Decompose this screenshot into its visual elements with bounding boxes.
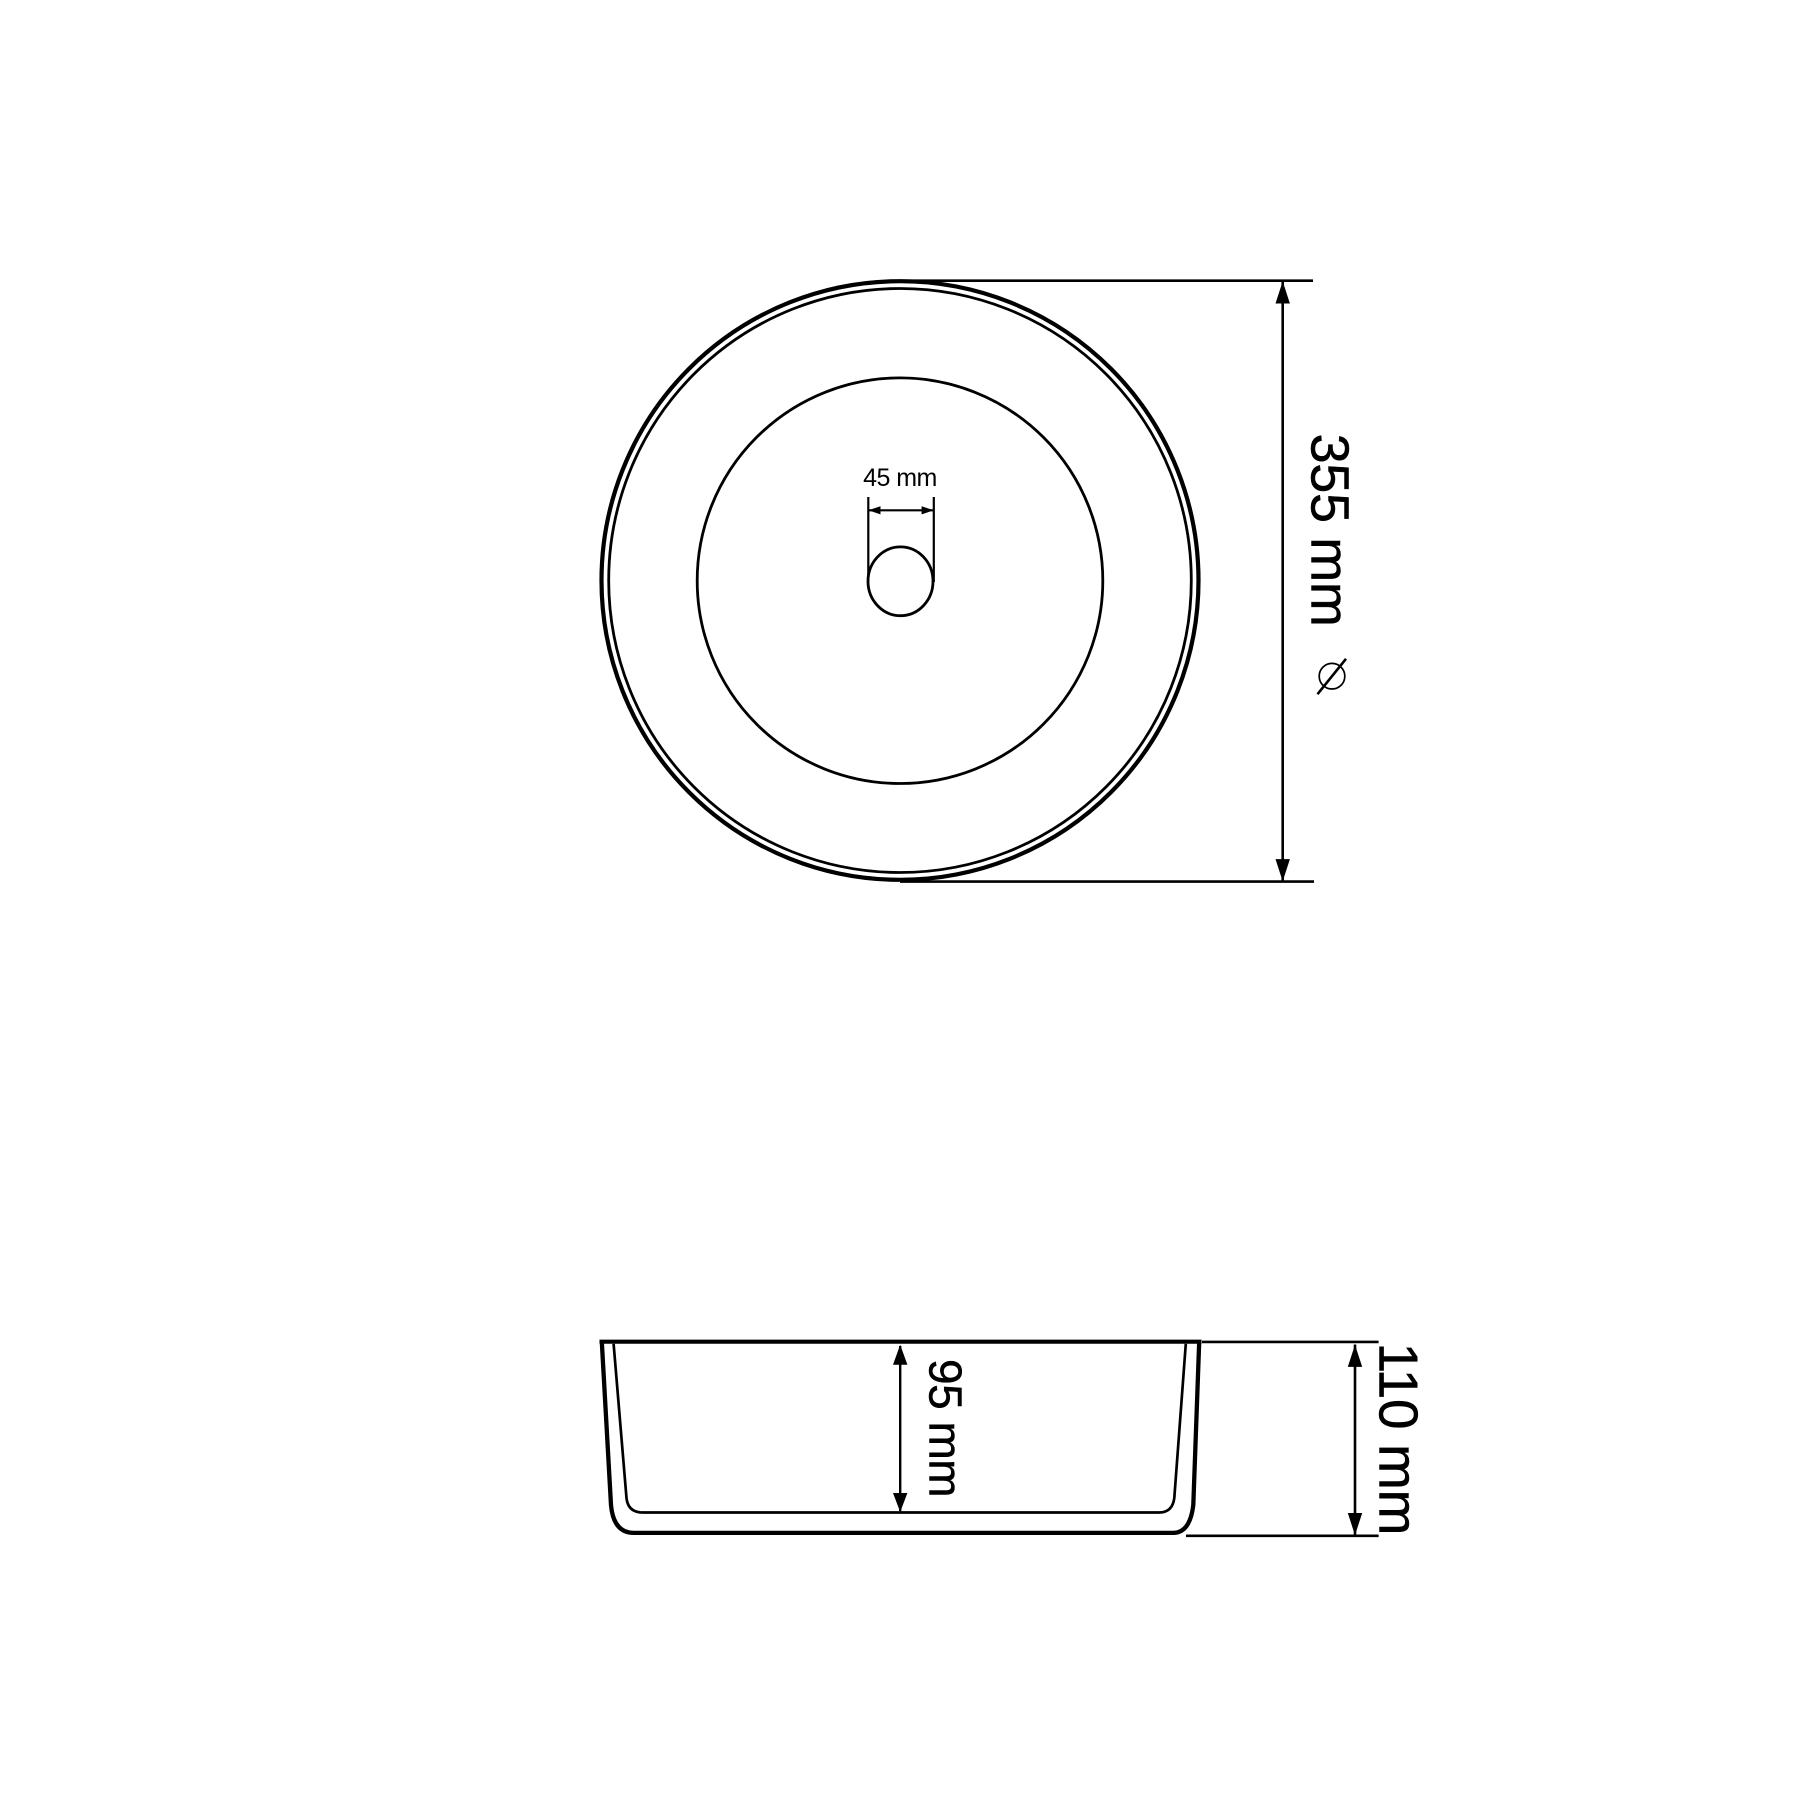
svg-text:110 mm: 110 mm (1368, 1343, 1430, 1536)
svg-text:45 mm: 45 mm (863, 464, 937, 492)
svg-text:355 mm: 355 mm (1300, 434, 1360, 627)
svg-text:95 mm: 95 mm (920, 1359, 972, 1497)
